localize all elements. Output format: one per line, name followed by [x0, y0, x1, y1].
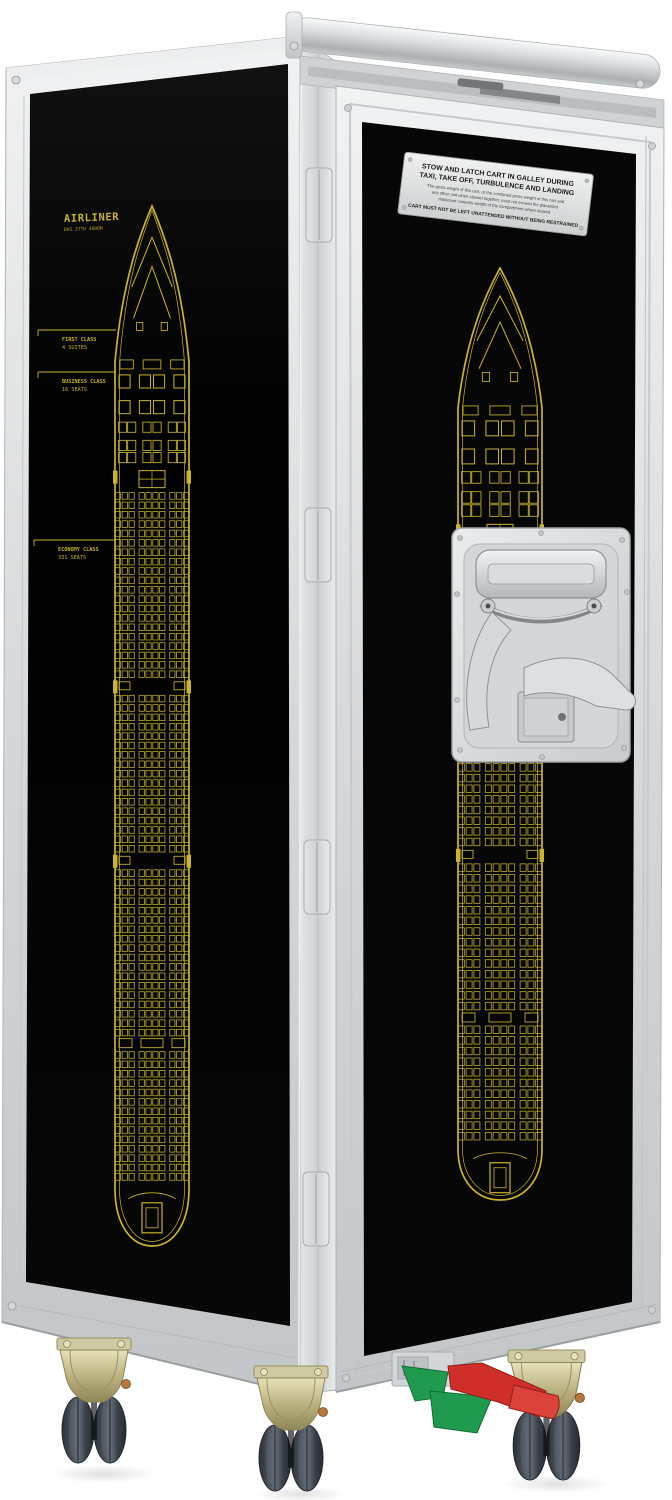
section-detail-business-class: 16 SEATS: [62, 387, 87, 393]
placard-screw: [408, 157, 412, 161]
latch-plate: [452, 528, 636, 762]
rail-end-cap: [286, 12, 302, 58]
caster-front-left: [57, 1338, 131, 1463]
door-hinge: [306, 168, 332, 242]
placard-screw: [585, 179, 589, 183]
door-hinge: [303, 1172, 329, 1246]
floor-shadow: [502, 1475, 610, 1493]
section-label-business-class: BUSINESS CLASS: [62, 379, 106, 385]
airliner-title: AIRLINER: [64, 211, 120, 225]
door-hinge: [304, 840, 330, 914]
placard-screw: [402, 205, 406, 209]
floor-shadow: [51, 1465, 155, 1483]
section-label-first-class: FIRST CLASS: [62, 337, 96, 343]
section-label-economy-class: ECONOMY CLASS: [58, 547, 99, 553]
rail-screw: [636, 80, 644, 88]
rail-screw: [290, 42, 298, 50]
caster-front-center: [254, 1366, 328, 1491]
section-detail-first-class: 4 SUITES: [62, 345, 87, 351]
door-hinge: [305, 508, 331, 582]
cart-illustration: AIRLINER DHS 37TH 4000M FIRST CLASS 4 SU…: [0, 0, 672, 1500]
placard-screw: [579, 226, 583, 230]
galley-cart-photo: AIRLINER DHS 37TH 4000M FIRST CLASS 4 SU…: [0, 0, 672, 1500]
section-detail-economy-class: 331 SEATS: [58, 555, 86, 561]
